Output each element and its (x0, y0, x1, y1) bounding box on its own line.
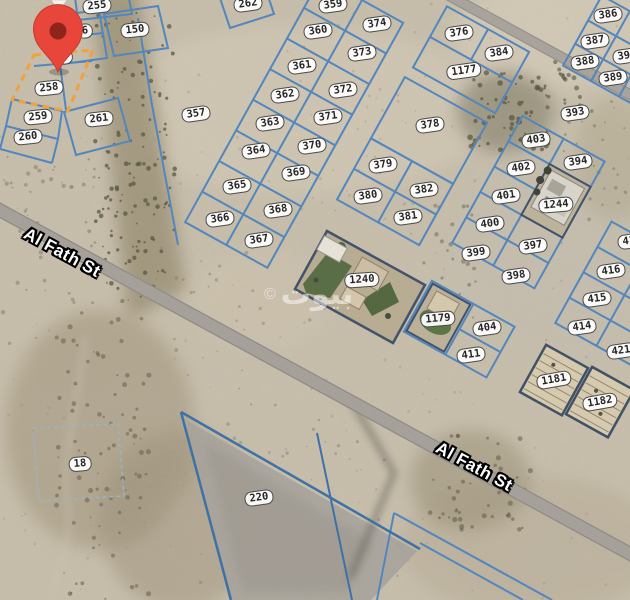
parcel-label-380[interactable]: 380 (353, 187, 384, 206)
parcel-labels-layer: 2551506725825926026135726235937436037336… (0, 0, 630, 600)
parcel-label-150[interactable]: 150 (120, 21, 150, 39)
parcel-label-364[interactable]: 364 (241, 142, 272, 161)
parcel-label-361[interactable]: 361 (287, 57, 318, 76)
parcel-label-262[interactable]: 262 (233, 0, 264, 13)
parcel-label-366[interactable]: 366 (205, 210, 236, 229)
parcel-label-359[interactable]: 359 (318, 0, 349, 14)
parcel-label-362[interactable]: 362 (270, 86, 301, 105)
parcel-label-360[interactable]: 360 (303, 22, 334, 41)
map-viewport[interactable]: © بيوت 255150672582592602613572623593743… (0, 0, 630, 600)
parcel-label-388[interactable]: 388 (570, 53, 601, 72)
parcel-label-382[interactable]: 382 (409, 181, 440, 200)
parcel-label-421[interactable]: 421 (606, 342, 630, 361)
parcel-label-376[interactable]: 376 (444, 24, 475, 43)
parcel-label-1177[interactable]: 1177 (445, 61, 482, 81)
parcel-label-372[interactable]: 372 (328, 81, 359, 100)
parcel-label-400[interactable]: 400 (475, 215, 506, 234)
parcel-label-398[interactable]: 398 (501, 267, 532, 286)
parcel-label-404[interactable]: 404 (472, 319, 503, 338)
parcel-label-386[interactable]: 386 (593, 6, 624, 25)
parcel-label-363[interactable]: 363 (255, 114, 286, 133)
parcel-label-415[interactable]: 415 (582, 290, 613, 309)
parcel-label-394[interactable]: 394 (563, 153, 594, 172)
parcel-label-255[interactable]: 255 (82, 0, 112, 15)
parcel-label-397[interactable]: 397 (518, 237, 549, 256)
parcel-label-416[interactable]: 416 (596, 262, 627, 281)
parcel-label-1182[interactable]: 1182 (581, 392, 618, 413)
parcel-label-387[interactable]: 387 (580, 32, 611, 51)
parcel-label-384[interactable]: 384 (484, 44, 515, 63)
parcel-label-368[interactable]: 368 (263, 201, 294, 220)
parcel-label-1179[interactable]: 1179 (420, 310, 456, 328)
parcel-label-1240[interactable]: 1240 (344, 271, 380, 288)
parcel-label-357[interactable]: 357 (181, 105, 212, 124)
parcel-label-390[interactable]: 390 (612, 47, 630, 66)
parcel-label-371[interactable]: 371 (313, 108, 344, 127)
parcel-label-417[interactable]: 417 (617, 232, 630, 251)
parcel-label-259[interactable]: 259 (23, 108, 53, 126)
parcel-label-381[interactable]: 381 (393, 208, 424, 227)
parcel-label-414[interactable]: 414 (567, 318, 598, 337)
parcel-label-260[interactable]: 260 (13, 128, 43, 146)
parcel-label-389[interactable]: 389 (598, 69, 629, 88)
parcel-label-261[interactable]: 261 (84, 110, 114, 128)
parcel-label-411[interactable]: 411 (456, 346, 487, 365)
parcel-label-258[interactable]: 258 (34, 79, 64, 97)
parcel-label-220[interactable]: 220 (244, 489, 275, 508)
parcel-label-402[interactable]: 402 (506, 159, 537, 178)
parcel-label-365[interactable]: 365 (222, 177, 253, 196)
parcel-label-1244[interactable]: 1244 (538, 196, 574, 214)
parcel-label-18[interactable]: 18 (68, 456, 92, 473)
parcel-label-374[interactable]: 374 (362, 15, 393, 34)
pin-inner-circle (50, 23, 67, 40)
parcel-label-370[interactable]: 370 (297, 137, 328, 156)
parcel-label-399[interactable]: 399 (461, 244, 492, 263)
parcel-label-367[interactable]: 367 (244, 231, 275, 250)
parcel-label-369[interactable]: 369 (281, 164, 312, 183)
parcel-label-379[interactable]: 379 (368, 156, 399, 175)
parcel-label-403[interactable]: 403 (521, 131, 552, 150)
parcel-label-393[interactable]: 393 (560, 104, 591, 123)
parcel-label-1181[interactable]: 1181 (535, 370, 572, 391)
parcel-label-373[interactable]: 373 (347, 44, 378, 63)
parcel-label-378[interactable]: 378 (415, 116, 446, 135)
parcel-label-401[interactable]: 401 (491, 187, 522, 206)
